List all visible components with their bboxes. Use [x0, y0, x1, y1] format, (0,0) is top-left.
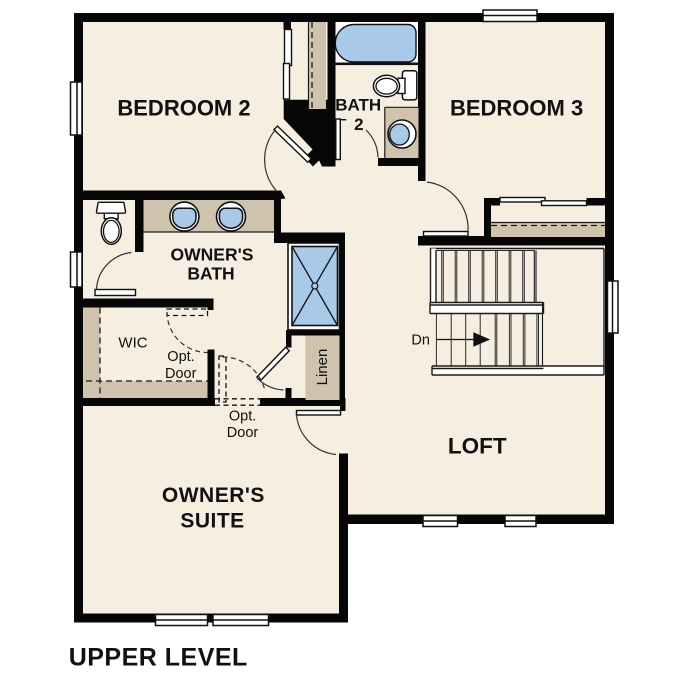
- svg-text:Linen: Linen: [314, 349, 331, 386]
- svg-text:LOFT: LOFT: [448, 434, 507, 459]
- svg-text:Opt.: Opt.: [167, 349, 194, 365]
- svg-text:Dn: Dn: [411, 333, 430, 349]
- svg-text:Door: Door: [227, 425, 259, 441]
- svg-text:OWNER'S: OWNER'S: [162, 484, 265, 507]
- svg-text:BATH: BATH: [335, 95, 381, 114]
- svg-text:WIC: WIC: [118, 334, 147, 351]
- svg-text:BATH: BATH: [187, 264, 234, 284]
- svg-text:UPPER LEVEL: UPPER LEVEL: [69, 644, 248, 672]
- svg-text:2: 2: [354, 115, 363, 134]
- svg-text:Opt.: Opt.: [229, 408, 256, 424]
- svg-text:BEDROOM 2: BEDROOM 2: [117, 95, 250, 120]
- svg-text:OWNER'S: OWNER'S: [171, 244, 254, 264]
- svg-text:BEDROOM 3: BEDROOM 3: [450, 96, 583, 121]
- svg-text:Door: Door: [165, 366, 197, 382]
- svg-text:SUITE: SUITE: [180, 510, 244, 533]
